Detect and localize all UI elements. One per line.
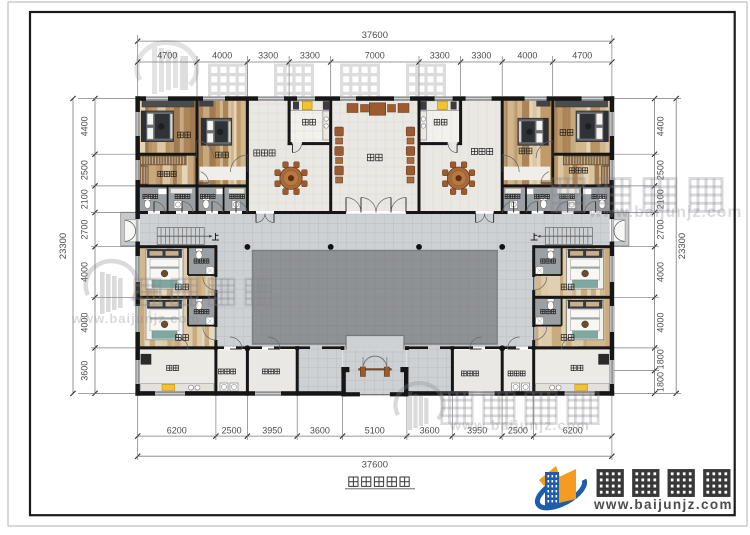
svg-text:3300: 3300 (430, 50, 450, 60)
svg-text:6200: 6200 (167, 425, 187, 435)
svg-text:4400: 4400 (80, 116, 90, 136)
svg-text:3950: 3950 (262, 425, 282, 435)
svg-text:www.baijunjz.com: www.baijunjz.com (593, 497, 733, 512)
svg-text:3300: 3300 (258, 50, 278, 60)
svg-text:1800: 1800 (656, 349, 666, 369)
svg-text:4000: 4000 (517, 50, 537, 60)
svg-text:7000: 7000 (365, 50, 385, 60)
svg-text:3600: 3600 (80, 361, 90, 381)
svg-text:37600: 37600 (362, 459, 388, 470)
svg-text:2100: 2100 (80, 189, 90, 209)
svg-text:www.baijunjz.com: www.baijunjz.com (71, 311, 200, 326)
svg-text:3300: 3300 (300, 50, 320, 60)
svg-text:4700: 4700 (157, 50, 177, 60)
svg-text:4700: 4700 (572, 50, 592, 60)
svg-text:3300: 3300 (471, 50, 491, 60)
svg-text:4000: 4000 (212, 50, 232, 60)
svg-text:4400: 4400 (656, 116, 666, 136)
svg-text:23300: 23300 (677, 233, 688, 259)
svg-text:2500: 2500 (80, 160, 90, 180)
svg-text:www.baijunjz.com: www.baijunjz.com (589, 204, 743, 221)
svg-text:www.baijunjz.com: www.baijunjz.com (449, 417, 590, 433)
svg-text:2700: 2700 (80, 220, 90, 240)
svg-text:23300: 23300 (58, 233, 69, 259)
svg-text:4000: 4000 (656, 313, 666, 333)
svg-text:3600: 3600 (420, 425, 440, 435)
svg-text:3600: 3600 (310, 425, 330, 435)
svg-text:1800: 1800 (656, 372, 666, 392)
svg-text:37600: 37600 (362, 30, 388, 41)
svg-text:5100: 5100 (365, 425, 385, 435)
svg-text:2500: 2500 (222, 425, 242, 435)
svg-text:4000: 4000 (656, 262, 666, 282)
svg-text:2700: 2700 (656, 220, 666, 240)
